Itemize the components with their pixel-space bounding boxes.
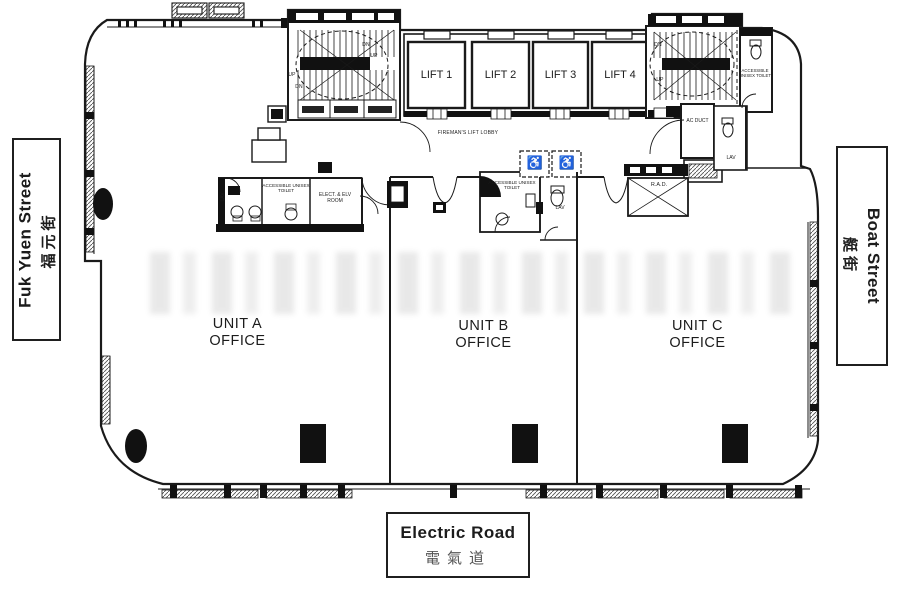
floor-plan-page: Fuk Yuen Street 福元街 Boat Street 艇街 Elect… — [0, 0, 900, 600]
unit-name: UNIT A — [180, 316, 295, 333]
lift-3-label: LIFT 3 — [533, 69, 588, 82]
stair-right-up-label: UP — [652, 78, 668, 84]
street-name-zh: 電氣道 — [425, 547, 491, 568]
lav-mid-label: LAV — [546, 206, 574, 212]
street-label-fuk-yuen: Fuk Yuen Street 福元街 — [12, 138, 61, 341]
stair-left — [252, 10, 400, 173]
unit-name: UNIT C — [640, 318, 755, 335]
elect-elv-room-label: ELECT. & ELV ROOM — [312, 193, 358, 205]
wheelchair-icon: ♿ — [521, 155, 549, 170]
stair-right-dn-label: DN — [650, 43, 666, 49]
stair-left-dn2-label: DN — [291, 85, 307, 91]
rad-label: R.A.D. — [632, 182, 686, 188]
street-name-en: Fuk Yuen Street — [15, 172, 35, 308]
stair-left-up2-label: UP — [284, 73, 300, 79]
accessible-toilet-mid-label: ACCESSIBLE UNISEX TOILET — [486, 180, 538, 191]
stair-left-dn-label: DN — [358, 43, 374, 49]
lift-4-label: LIFT 4 — [592, 69, 648, 82]
watermark — [150, 252, 800, 314]
street-label-boat: Boat Street 艇街 — [836, 146, 888, 366]
lift-1-label: LIFT 1 — [408, 69, 465, 82]
lav-left-label: LAV — [221, 177, 227, 217]
ac-duct-room — [681, 104, 714, 158]
lift-2-label: LIFT 2 — [472, 69, 529, 82]
unit-c-label: UNIT C OFFICE — [640, 318, 755, 352]
street-label-electric-road: Electric Road 電氣道 — [386, 512, 530, 578]
stair-right — [646, 14, 742, 118]
accessible-toilet-right-label: ACCESSIBLE UNISEX TOILET — [737, 68, 773, 78]
unit-type: OFFICE — [640, 335, 755, 352]
street-name-zh: 福元街 — [37, 211, 58, 268]
stair-left-up-label: UP — [366, 54, 382, 60]
lav-right-label: LAV — [716, 156, 746, 162]
accessible-toilet-left-label: ACCESSIBLE UNISEX TOILET — [261, 183, 311, 194]
unit-name: UNIT B — [426, 318, 541, 335]
unit-type: OFFICE — [180, 333, 295, 350]
street-name-zh: 艇街 — [841, 237, 862, 275]
ac-duct-label: AC DUCT — [681, 119, 714, 125]
fireman-lift-lobby-label: FIREMAN'S LIFT LOBBY — [408, 131, 528, 137]
street-name-en: Boat Street — [864, 208, 884, 304]
unit-a-label: UNIT A OFFICE — [180, 316, 295, 350]
unit-type: OFFICE — [426, 335, 541, 352]
bottom-sill — [162, 485, 802, 498]
street-name-en: Electric Road — [400, 523, 515, 543]
unit-b-label: UNIT B OFFICE — [426, 318, 541, 352]
wheelchair-icon: ♿ — [553, 155, 581, 170]
